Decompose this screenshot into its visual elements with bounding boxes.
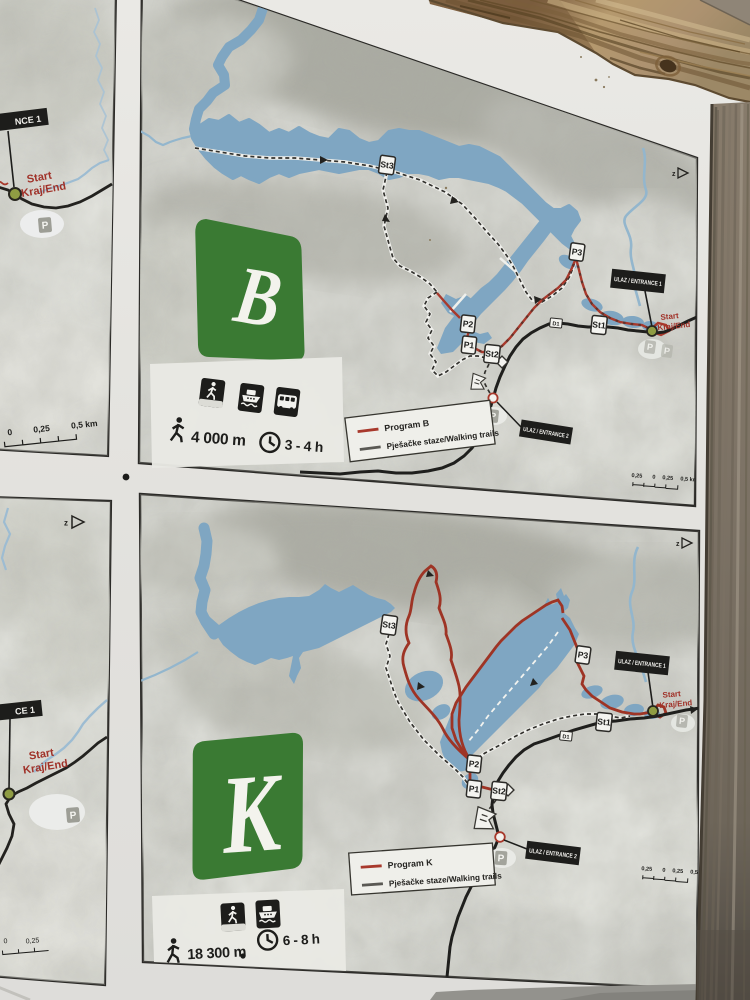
svg-text:z: z — [676, 541, 680, 548]
svg-text:0: 0 — [3, 938, 8, 945]
svg-text:3 - 4 h: 3 - 4 h — [284, 436, 323, 455]
svg-text:z: z — [64, 519, 68, 528]
svg-text:St3: St3 — [382, 619, 397, 631]
svg-text:St2: St2 — [485, 348, 500, 359]
svg-text:P: P — [41, 220, 49, 232]
svg-text:z: z — [672, 171, 676, 178]
svg-text:P: P — [69, 810, 77, 822]
svg-text:D1: D1 — [552, 321, 560, 328]
svg-text:P3: P3 — [571, 246, 583, 257]
svg-text:0: 0 — [652, 474, 656, 480]
svg-text:0,25: 0,25 — [33, 423, 51, 435]
svg-text:P2: P2 — [468, 758, 480, 769]
svg-text:P2: P2 — [462, 318, 474, 329]
svg-text:0: 0 — [662, 868, 666, 874]
svg-text:0,25: 0,25 — [631, 473, 642, 480]
svg-text:0,25: 0,25 — [641, 866, 652, 873]
svg-text:St1: St1 — [597, 716, 612, 727]
svg-text:P: P — [678, 716, 685, 727]
svg-text:St3: St3 — [380, 159, 395, 171]
svg-text:18 300 m: 18 300 m — [187, 944, 247, 963]
svg-text:0,25: 0,25 — [672, 868, 683, 875]
svg-text:6 - 8 h: 6 - 8 h — [282, 931, 320, 948]
svg-text:Start: Start — [662, 689, 681, 700]
svg-text:P1: P1 — [468, 783, 480, 794]
svg-text:0,25: 0,25 — [25, 937, 39, 945]
svg-text:0,25: 0,25 — [662, 475, 673, 482]
svg-text:St1: St1 — [592, 319, 607, 330]
svg-text:CE 1: CE 1 — [15, 705, 36, 717]
svg-text:P: P — [497, 853, 505, 864]
svg-text:St2: St2 — [492, 785, 507, 796]
svg-text:D1: D1 — [562, 734, 570, 741]
svg-text:P3: P3 — [577, 649, 589, 660]
svg-text:P1: P1 — [463, 339, 475, 350]
